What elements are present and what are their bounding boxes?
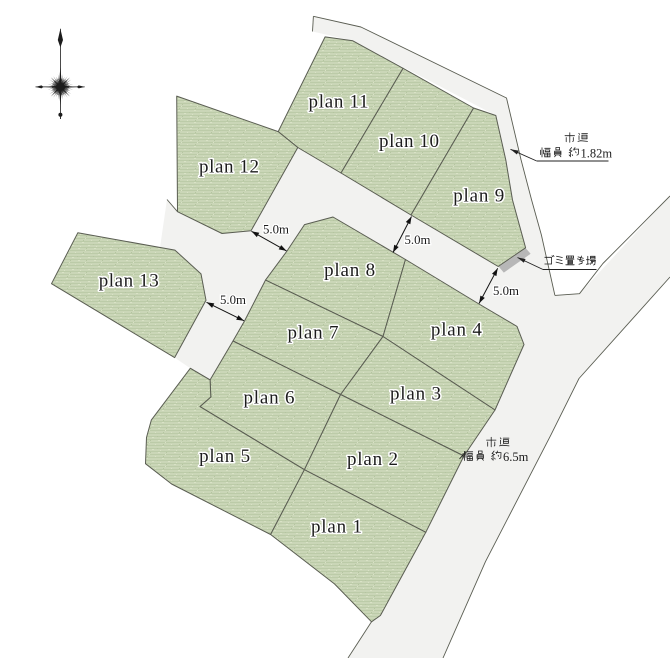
svg-text:plan 1: plan 1	[311, 517, 362, 538]
svg-text:plan 4: plan 4	[431, 320, 483, 341]
svg-text:5.0m: 5.0m	[263, 223, 289, 237]
svg-text:plan 2: plan 2	[347, 449, 398, 470]
svg-text:plan 5: plan 5	[199, 446, 250, 467]
svg-text:1.82m: 1.82m	[581, 146, 613, 160]
svg-text:plan 6: plan 6	[244, 388, 295, 409]
svg-text:plan 10: plan 10	[379, 131, 439, 152]
svg-text:plan 7: plan 7	[288, 323, 339, 344]
svg-text:plan 3: plan 3	[390, 384, 441, 405]
svg-text:5.0m: 5.0m	[405, 233, 431, 247]
svg-text:plan 13: plan 13	[99, 271, 159, 292]
svg-text:plan 11: plan 11	[309, 92, 369, 113]
svg-text:plan 8: plan 8	[324, 260, 375, 281]
svg-text:5.0m: 5.0m	[220, 293, 246, 307]
svg-text:plan 9: plan 9	[453, 185, 504, 206]
svg-text:plan 12: plan 12	[199, 157, 259, 178]
svg-text:6.5m: 6.5m	[503, 450, 529, 464]
svg-text:5.0m: 5.0m	[493, 284, 519, 298]
